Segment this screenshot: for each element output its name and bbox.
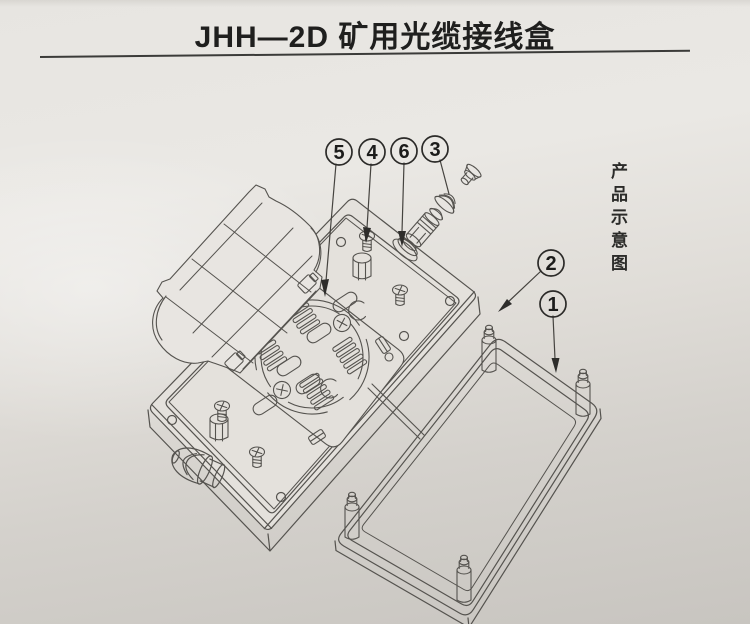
- callout-6-number: 6: [398, 141, 409, 163]
- callout-3: 3: [422, 136, 448, 162]
- callout-4-number: 4: [366, 142, 378, 164]
- callout-3-number: 3: [429, 139, 440, 161]
- frame-thickness: [335, 409, 601, 624]
- callout-2-number: 2: [545, 253, 556, 275]
- leader-line-6: [402, 163, 404, 232]
- exploded-view-diagram: 5 4 6 3 2 1: [0, 0, 750, 624]
- gland-plug: [456, 162, 482, 188]
- callout-1: 1: [540, 291, 566, 317]
- leader-line-2: [506, 271, 541, 304]
- leader-line-1: [553, 316, 555, 359]
- leader-arrow-1: [552, 358, 560, 373]
- callout-5: 5: [326, 139, 352, 165]
- corner-post: [457, 555, 471, 602]
- callout-1-number: 1: [547, 294, 558, 316]
- callout-4: 4: [359, 139, 385, 165]
- leader-line-3: [440, 160, 449, 194]
- callout-2: 2: [538, 250, 564, 276]
- callout-6: 6: [391, 138, 417, 164]
- callout-5-number: 5: [333, 142, 344, 164]
- photographed-diagram-sheet: JHH—2D 矿用光缆接线盒 产品示意图: [0, 0, 750, 624]
- corner-post: [345, 492, 359, 539]
